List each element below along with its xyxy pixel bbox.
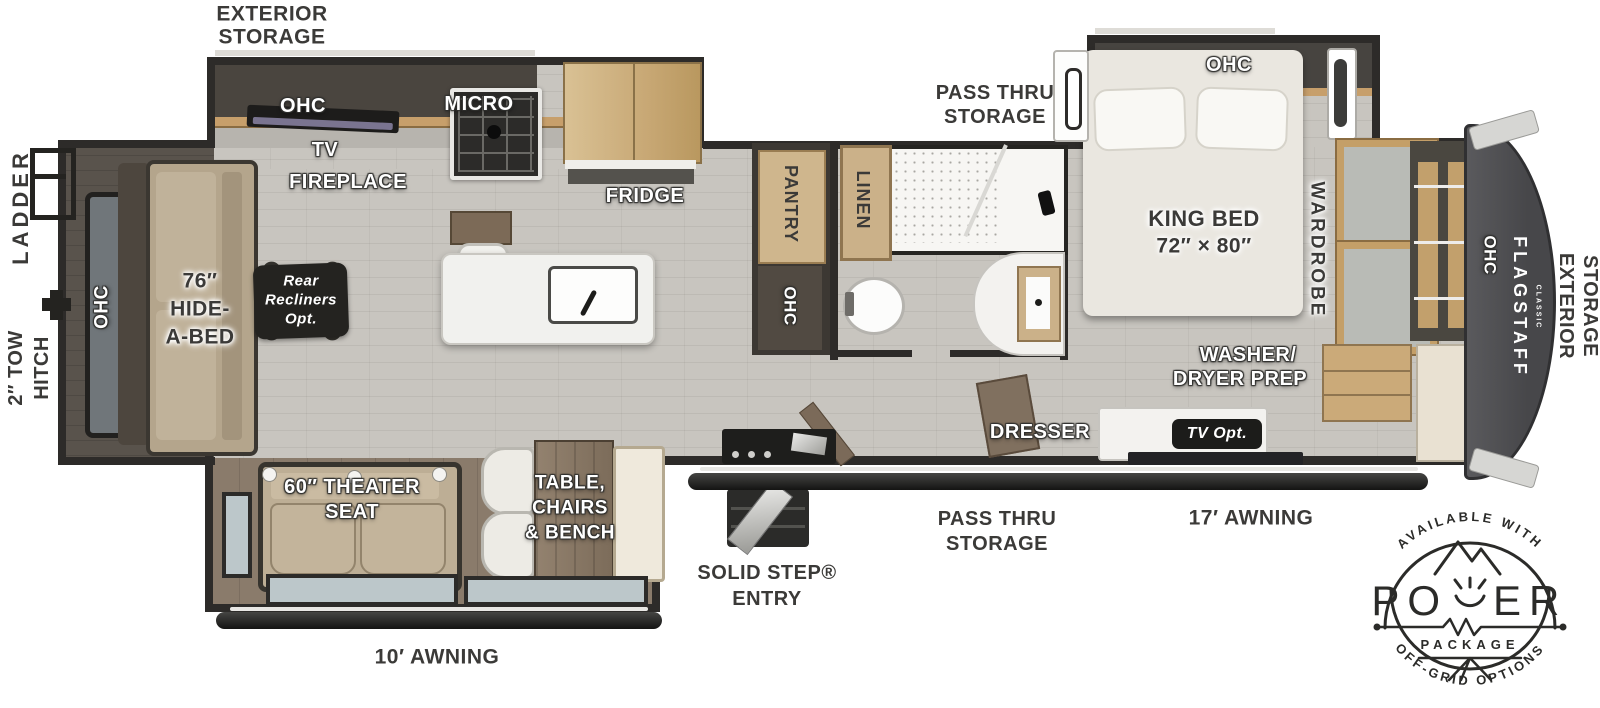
label-tow-hitch-2: HITCH — [32, 336, 52, 400]
label-linen: LINEN — [854, 171, 872, 230]
label-dinette-3: & BENCH — [525, 524, 615, 543]
label-dresser: DRESSER — [990, 422, 1090, 442]
label-hide-a-bed-3: A-BED — [166, 327, 235, 348]
label-fridge: FRIDGE — [606, 186, 685, 206]
label-ohc-rear: OHC — [93, 285, 112, 329]
label-tv-opt: TV Opt. — [1187, 426, 1247, 442]
bedroom-window — [1327, 48, 1357, 140]
cupholder — [262, 467, 277, 482]
tv-optional-unit — [1128, 452, 1303, 465]
entry-step-well — [722, 429, 836, 464]
stove-burner — [487, 125, 501, 139]
label-tv: TV — [312, 140, 339, 160]
cupholder — [432, 467, 447, 482]
brand-logo: FLAGSTAFF — [1511, 236, 1529, 378]
label-pass-thru-bottom-1: PASS THRU — [938, 509, 1057, 529]
side-table — [450, 211, 512, 245]
pass-thru-hatch-door — [1053, 50, 1089, 142]
label-rear-recliners-1: Rear — [283, 274, 318, 289]
slide-side-window — [222, 492, 252, 578]
vanity-faucet-icon — [1035, 299, 1042, 306]
ladder-icon — [30, 148, 76, 220]
label-hide-a-bed-1: 76″ — [183, 271, 218, 292]
power-package-badge: AVAILABLE WITH PO ER PACKAGE OFF-GRID OP… — [1355, 490, 1585, 706]
label-king-bed-1: KING BED — [1148, 208, 1260, 230]
label-washer-dryer-2: DRYER PREP — [1173, 369, 1307, 389]
label-theater-seat-1: 60″ THEATER — [284, 477, 420, 497]
wall-rear-bottom — [58, 457, 215, 465]
label-ohc-front: OHC — [1482, 235, 1499, 274]
vanity-sink-cabinet — [1017, 266, 1061, 342]
label-ohc-kitchen: OHC — [280, 96, 326, 116]
floorplan-canvas: EXTERIOR STORAGE LADDER 2″ TOW HITCH OHC… — [0, 0, 1600, 708]
label-washer-dryer-1: WASHER/ — [1200, 345, 1297, 365]
slide-bottom-window — [266, 574, 458, 606]
badge-package-text: PACKAGE — [1420, 637, 1519, 652]
label-pass-thru-top-2: STORAGE — [944, 107, 1046, 127]
bedroom-slide-roof-trim — [1095, 28, 1275, 34]
label-awning-left: 10′ AWNING — [375, 647, 500, 668]
label-theater-seat-2: SEAT — [325, 502, 379, 522]
awning-left-roller — [216, 612, 662, 629]
slide-bottom-window — [464, 576, 648, 606]
wall-bath-bottom-left — [837, 350, 912, 357]
label-exterior-storage-top-2: STORAGE — [219, 27, 326, 48]
stair-rail — [727, 481, 793, 555]
fridge-base-trim — [565, 160, 696, 169]
kitchen-slide-roof-trim — [215, 50, 535, 56]
label-ladder: LADDER — [10, 149, 32, 265]
label-ohc-bedroom: OHC — [1206, 55, 1252, 75]
shower-tile — [892, 149, 1002, 243]
label-rear-recliners-3: Opt. — [285, 312, 317, 327]
drawer-line — [1324, 370, 1410, 372]
awning-left-rail — [230, 607, 648, 611]
line-end-dot — [1374, 624, 1381, 631]
label-micro: MICRO — [444, 94, 513, 114]
dinette-chair — [481, 511, 535, 579]
label-exterior-storage-right-1: EXTERIOR — [1556, 253, 1576, 359]
label-solid-step-2: ENTRY — [732, 589, 802, 609]
bath-vanity — [973, 252, 1065, 356]
label-rear-recliners-2: Recliners — [265, 293, 337, 308]
label-ohc-pantry: OHC — [782, 286, 799, 325]
label-pantry: PANTRY — [782, 165, 800, 243]
label-hide-a-bed-2: HIDE- — [170, 299, 230, 320]
label-wardrobe: WARDROBE — [1308, 182, 1327, 319]
ladder-rung — [30, 174, 66, 179]
sun-icon — [1455, 578, 1485, 606]
badge-arc-top-text: AVAILABLE WITH — [1394, 509, 1546, 552]
drawer-line — [1324, 394, 1410, 396]
kitchen-island — [441, 253, 655, 345]
dinette-chair — [481, 447, 535, 515]
label-fireplace: FIREPLACE — [289, 172, 407, 192]
pillow — [1093, 86, 1187, 151]
label-pass-thru-top-1: PASS THRU — [936, 83, 1055, 103]
dinette-bench — [613, 446, 665, 582]
awning-right-roller — [688, 473, 1428, 490]
label-king-bed-2: 72″ × 80″ — [1156, 236, 1251, 257]
label-awning-right: 17′ AWNING — [1189, 508, 1314, 529]
pass-thru-hatch-handle — [1065, 68, 1082, 130]
label-exterior-storage-right-2: STORAGE — [1580, 255, 1600, 357]
awning-right-rail — [700, 467, 1418, 471]
label-pass-thru-bottom-2: STORAGE — [946, 534, 1048, 554]
refrigerator — [563, 62, 702, 164]
badge-power-right: ER — [1493, 577, 1567, 624]
bedroom-window-glass — [1334, 59, 1347, 127]
step-dot — [748, 451, 755, 458]
step-tread — [791, 433, 827, 456]
king-bed — [1083, 50, 1303, 316]
badge-power-left: PO — [1371, 577, 1448, 624]
fridge-base-counter — [568, 169, 694, 184]
fridge-door-split — [633, 64, 635, 162]
svg-text:AVAILABLE WITH: AVAILABLE WITH — [1394, 509, 1546, 552]
wall-bedroom-slide-top — [1087, 35, 1380, 43]
toilet-hinge — [845, 292, 854, 316]
pillow — [1195, 86, 1289, 151]
brand-logo-sub: CLASSIC — [1535, 285, 1542, 330]
bedroom-drawers — [1322, 344, 1412, 422]
solid-step-stairs — [727, 489, 809, 547]
wall-rear-top — [58, 140, 215, 148]
label-dinette-1: TABLE, — [535, 474, 605, 493]
wall-kitchen-slide-left — [207, 57, 215, 148]
showerhead-icon — [1037, 190, 1055, 216]
label-solid-step-1: SOLID STEP® — [697, 563, 836, 583]
wall-bedroom-slide-right — [1372, 35, 1380, 141]
shower — [888, 145, 1068, 255]
label-dinette-2: CHAIRS — [532, 499, 608, 518]
wall-bath-left — [830, 145, 838, 360]
step-dot — [764, 451, 771, 458]
line-end-dot — [1560, 624, 1567, 631]
step-dot — [732, 451, 739, 458]
label-exterior-storage-top-1: EXTERIOR — [216, 4, 327, 25]
wall-bottom-slide-left — [205, 455, 213, 612]
label-tow-hitch-1: 2″ TOW — [6, 330, 26, 406]
tow-hitch-icon-bar — [42, 298, 71, 311]
